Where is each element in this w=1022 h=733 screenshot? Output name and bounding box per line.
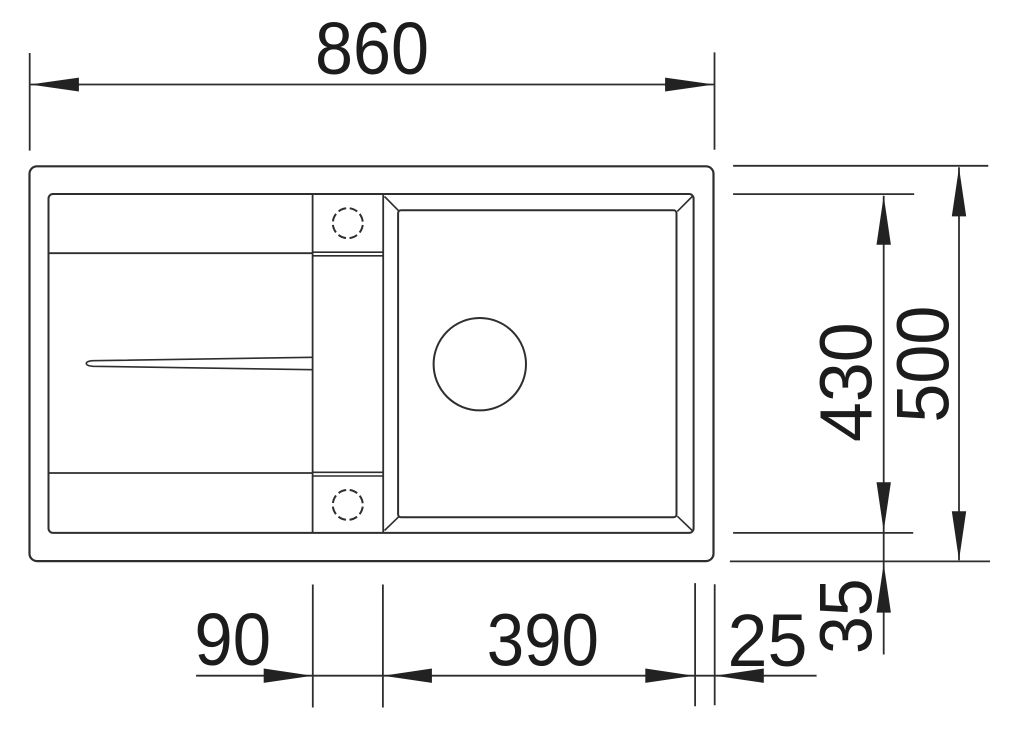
svg-text:500: 500 [881, 306, 964, 423]
svg-text:860: 860 [315, 7, 429, 90]
svg-text:430: 430 [805, 322, 888, 442]
svg-text:25: 25 [728, 599, 808, 682]
svg-text:90: 90 [194, 598, 271, 681]
svg-text:390: 390 [487, 599, 599, 682]
svg-text:35: 35 [805, 578, 888, 654]
